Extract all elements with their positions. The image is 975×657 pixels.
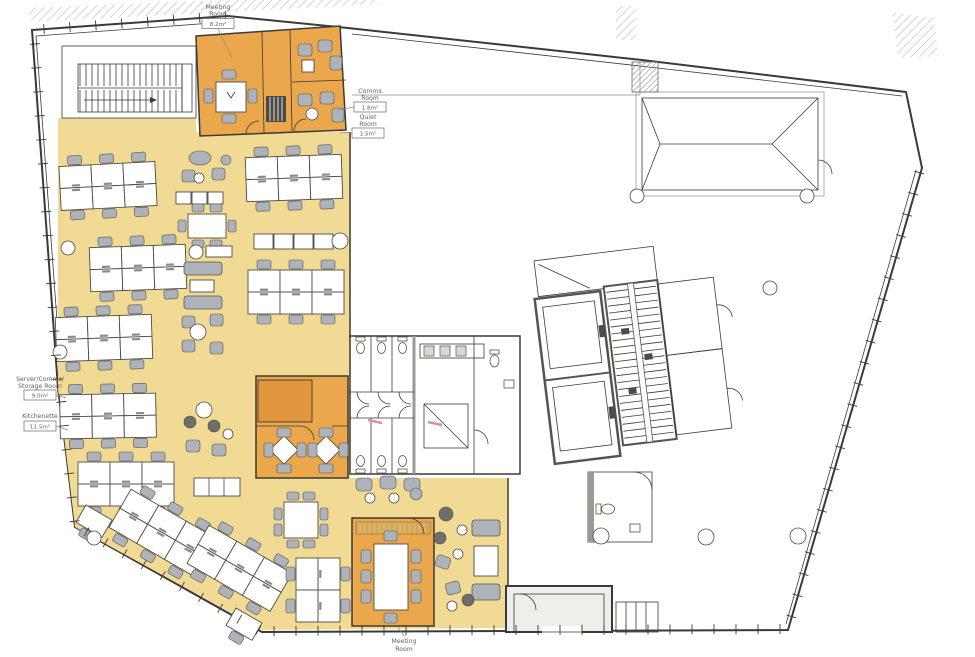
party-wall-hatch-right (892, 12, 938, 58)
label-text: Room (361, 95, 379, 102)
column (53, 345, 67, 359)
column (698, 529, 714, 545)
label-text: Meeting (392, 638, 417, 645)
desk-bank (58, 152, 157, 221)
flue-wall (632, 62, 658, 92)
column (87, 531, 101, 545)
desk-bank (55, 304, 153, 371)
label-text: Server/Comms/ (16, 376, 65, 383)
meeting-suite-top (196, 26, 346, 136)
comms-rack (266, 96, 286, 122)
label-text: Room (209, 11, 227, 18)
entry-steps (616, 602, 658, 632)
meeting-room-bottom-group (352, 518, 434, 626)
label-text: Comms (358, 88, 381, 95)
label-text: Room (359, 121, 377, 128)
wc-core (350, 336, 520, 474)
label-comms-room: Comms Room 1.8m² (338, 88, 386, 112)
area-value: 8.2m² (210, 21, 227, 28)
desk-bank (245, 144, 343, 211)
desk-bank (286, 558, 350, 622)
wc-cubicles (356, 337, 411, 473)
washroom-fixtures (368, 336, 514, 474)
label-text: Meeting (206, 4, 231, 11)
floor-plan-page: Meeting Room 8.2m² Server/Comms/ Storage… (0, 0, 975, 657)
floor-plan-drawing: Meeting Room 8.2m² Server/Comms/ Storage… (0, 0, 975, 657)
rooflight (632, 62, 832, 196)
area-value: 1.8m² (362, 105, 379, 112)
area-value: 11.5m² (30, 424, 50, 431)
meeting-rooms-mid (256, 376, 348, 478)
label-text: Kitchenette (22, 413, 58, 420)
column (763, 281, 777, 295)
area-value: 9.0m² (32, 393, 49, 400)
desk-bank (89, 234, 187, 301)
meeting-room-mid-inner (258, 380, 312, 422)
column (790, 528, 806, 544)
desk-bank (59, 383, 156, 449)
area-value: 1.5m² (360, 131, 377, 138)
column (800, 189, 814, 203)
stair-top-left (62, 46, 196, 118)
desk-bank (248, 260, 344, 324)
column (593, 528, 609, 544)
lift-stair-core (530, 238, 747, 464)
label-text: Quiet (360, 114, 377, 121)
label-text: Storage Room (18, 383, 62, 390)
label-text: Room (395, 646, 413, 653)
site-hatching (26, 0, 938, 58)
bench-row (254, 233, 348, 249)
column (61, 241, 75, 255)
column (630, 189, 644, 203)
party-wall-hatch-mid (616, 6, 636, 40)
